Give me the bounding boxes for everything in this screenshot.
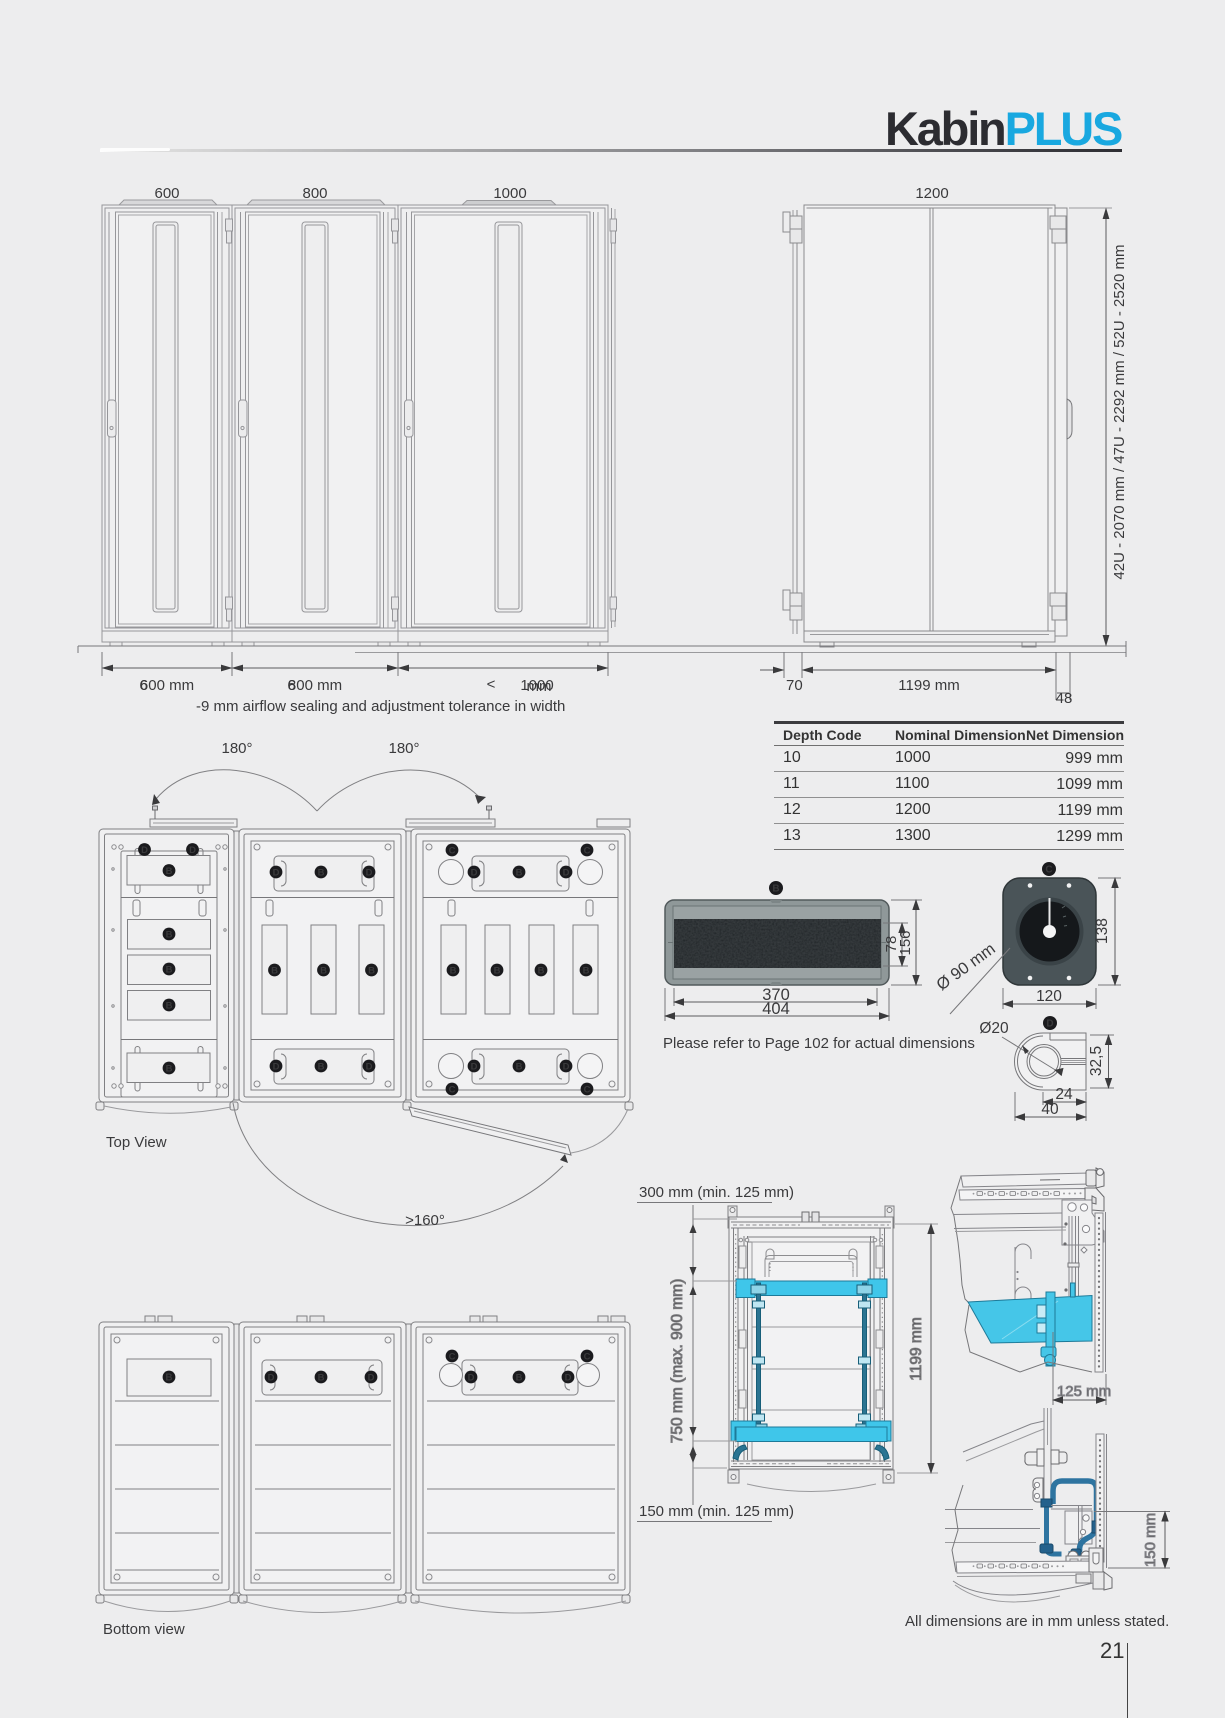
svg-text:C: C xyxy=(449,1352,456,1363)
svg-text:D: D xyxy=(468,1373,475,1384)
svg-text:B: B xyxy=(538,966,545,977)
svg-text:D: D xyxy=(1046,1019,1053,1030)
svg-text:120: 120 xyxy=(1036,988,1062,1005)
svg-text:B: B xyxy=(772,884,779,895)
svg-text:Ø20: Ø20 xyxy=(979,1020,1009,1037)
svg-text:1199 mm: 1199 mm xyxy=(898,677,959,694)
svg-text:C: C xyxy=(584,1085,591,1096)
svg-text:B: B xyxy=(166,929,173,940)
svg-text:404: 404 xyxy=(762,1000,790,1018)
svg-text:D: D xyxy=(273,1062,280,1073)
svg-text:B: B xyxy=(368,966,375,977)
svg-text:B: B xyxy=(320,966,327,977)
svg-text:C: C xyxy=(449,846,456,857)
svg-text:600: 600 xyxy=(154,185,179,202)
svg-text:D: D xyxy=(273,868,280,879)
svg-text:C: C xyxy=(584,846,591,857)
svg-text:1200: 1200 xyxy=(915,185,948,202)
svg-text:Ø 90 mm: Ø 90 mm xyxy=(935,940,999,994)
svg-text:D: D xyxy=(141,845,148,856)
svg-text:B: B xyxy=(318,1062,325,1073)
svg-text:42U - 2070 mm / 47U - 2292 mm: 42U - 2070 mm / 47U - 2292 mm / 52U - 25… xyxy=(1111,244,1128,579)
svg-text:600 mm: 600 mm xyxy=(140,677,194,694)
svg-text:6: 6 xyxy=(287,677,295,694)
svg-text:125 mm: 125 mm xyxy=(1057,1383,1111,1400)
svg-text:150 mm: 150 mm xyxy=(1142,1513,1159,1567)
svg-text:D: D xyxy=(563,1062,570,1073)
svg-text:B: B xyxy=(166,1063,173,1074)
svg-text:B: B xyxy=(516,1373,523,1384)
svg-text:D: D xyxy=(565,1373,572,1384)
svg-text:1000: 1000 xyxy=(493,185,526,202)
svg-text:B: B xyxy=(450,966,457,977)
svg-text:800 mm: 800 mm xyxy=(288,677,342,694)
svg-text:B: B xyxy=(583,966,590,977)
svg-text:180°: 180° xyxy=(388,740,419,757)
svg-text:D: D xyxy=(366,868,373,879)
svg-text:C: C xyxy=(584,1352,591,1363)
svg-text:B: B xyxy=(494,966,501,977)
svg-text:B: B xyxy=(166,964,173,975)
svg-text:C: C xyxy=(1045,865,1052,876)
svg-text:1199 mm: 1199 mm xyxy=(908,1317,925,1380)
svg-text:156: 156 xyxy=(897,930,914,955)
svg-text:D: D xyxy=(471,868,478,879)
svg-text:6: 6 xyxy=(139,677,147,694)
svg-text:>160°: >160° xyxy=(405,1212,445,1229)
svg-text:32,5: 32,5 xyxy=(1088,1046,1105,1076)
svg-text:B: B xyxy=(166,1000,173,1011)
svg-text:750 mm (max. 900 mm): 750 mm (max. 900 mm) xyxy=(669,1279,686,1444)
svg-text:B: B xyxy=(516,868,523,879)
svg-text:B: B xyxy=(166,866,173,877)
svg-text:D: D xyxy=(189,845,196,856)
svg-text:70: 70 xyxy=(786,677,803,694)
svg-text:D: D xyxy=(366,1062,373,1073)
svg-text:D: D xyxy=(563,868,570,879)
svg-text:B: B xyxy=(318,1373,325,1384)
svg-text:B: B xyxy=(318,868,325,879)
svg-text:138: 138 xyxy=(1094,918,1111,944)
svg-text:<: < xyxy=(487,676,496,693)
svg-text:40: 40 xyxy=(1041,1101,1059,1118)
svg-text:48: 48 xyxy=(1056,690,1073,707)
svg-text:B: B xyxy=(271,966,278,977)
svg-text:800: 800 xyxy=(302,185,327,202)
svg-text:D: D xyxy=(268,1373,275,1384)
svg-text:D: D xyxy=(368,1373,375,1384)
svg-text:mm: mm xyxy=(527,678,552,695)
svg-text:180°: 180° xyxy=(221,740,252,757)
svg-text:D: D xyxy=(471,1062,478,1073)
svg-text:B: B xyxy=(516,1062,523,1073)
svg-text:C: C xyxy=(449,1085,456,1096)
svg-text:B: B xyxy=(165,1373,172,1384)
